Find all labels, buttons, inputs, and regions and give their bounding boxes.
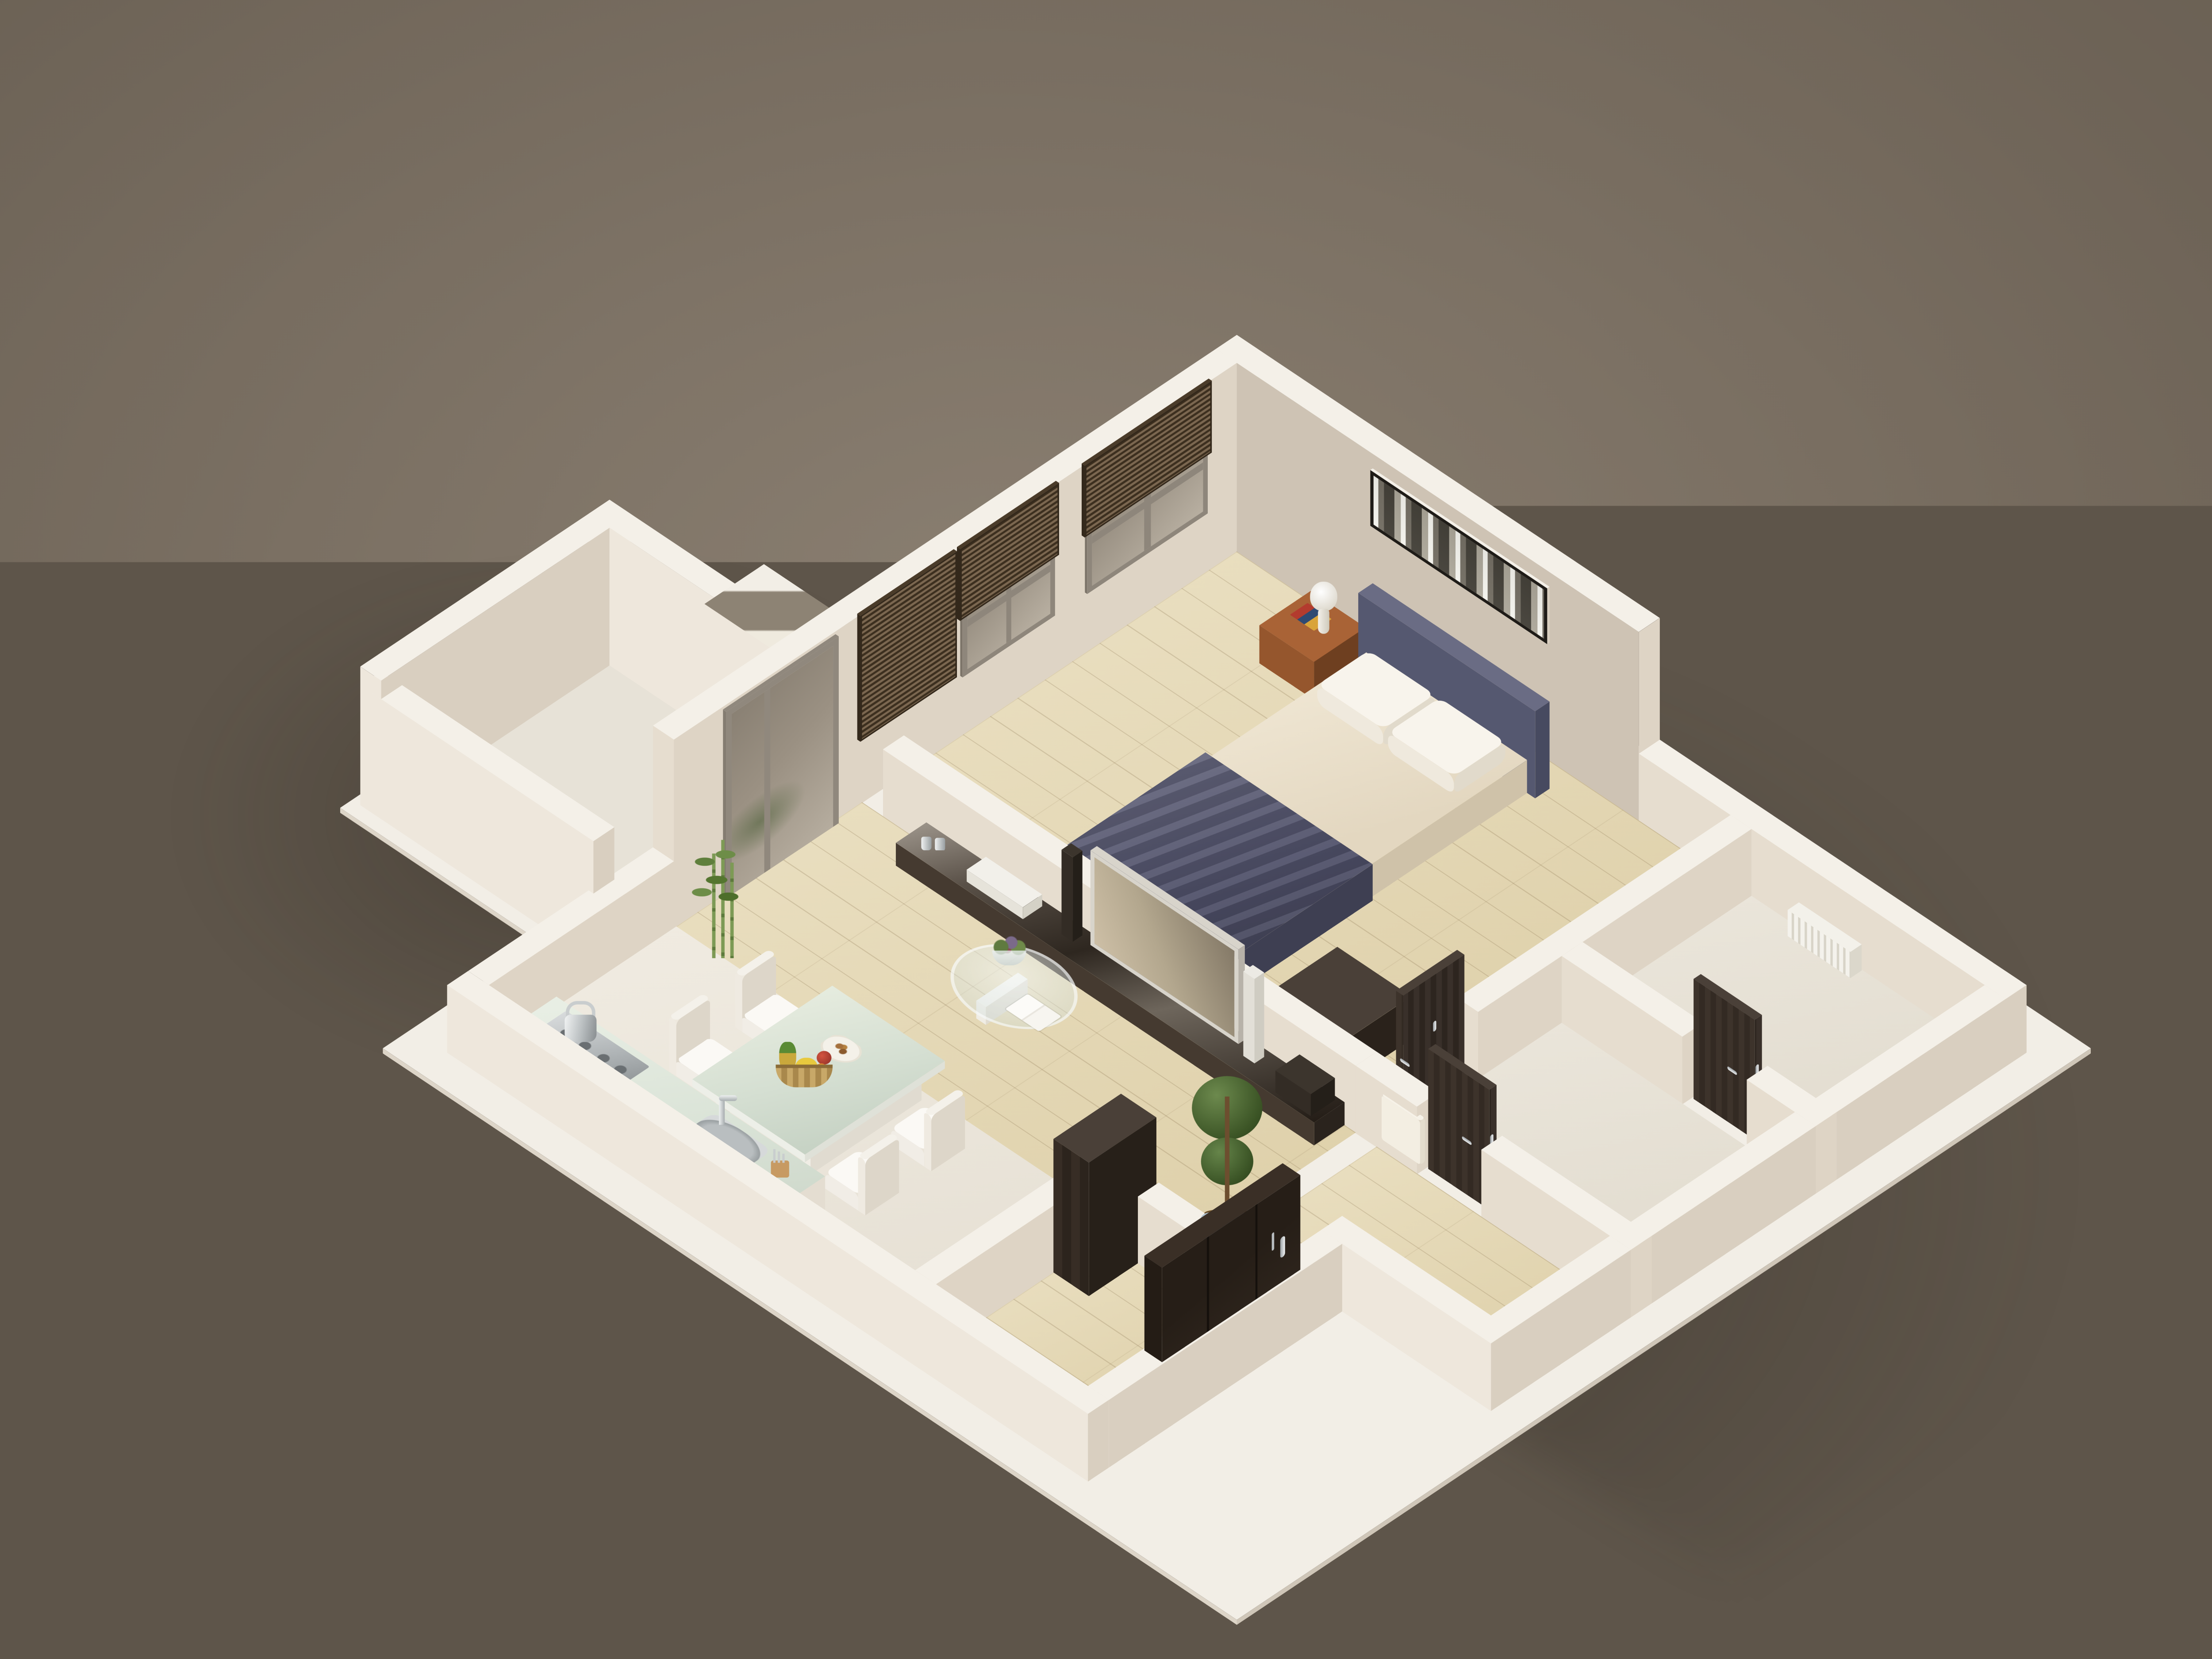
studio-backdrop <box>0 0 2212 1659</box>
render-viewport <box>0 0 2212 1659</box>
